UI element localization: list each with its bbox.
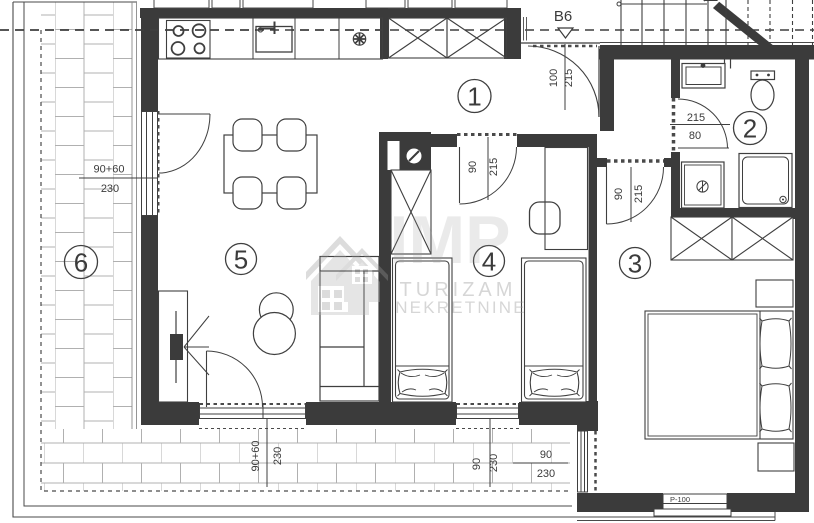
svg-text:5: 5: [234, 245, 248, 275]
svg-text:6: 6: [74, 248, 88, 278]
svg-text:90: 90: [613, 188, 625, 200]
svg-text:215: 215: [563, 69, 575, 87]
svg-text:230: 230: [488, 454, 500, 472]
svg-text:NEKRETNINE: NEKRETNINE: [395, 298, 527, 317]
svg-text:90: 90: [471, 458, 483, 470]
svg-text:100: 100: [548, 69, 560, 87]
svg-text:230: 230: [272, 447, 284, 465]
svg-text:90: 90: [540, 449, 552, 461]
svg-text:B6: B6: [554, 8, 572, 25]
svg-text:2: 2: [743, 114, 757, 144]
svg-text:3: 3: [628, 249, 642, 279]
svg-text:90+60: 90+60: [94, 164, 125, 176]
svg-text:230: 230: [101, 183, 119, 195]
svg-text:IMP: IMP: [390, 202, 511, 278]
svg-text:215: 215: [687, 112, 705, 124]
svg-text:230: 230: [537, 468, 555, 480]
svg-text:P-100: P-100: [670, 495, 690, 504]
svg-text:1: 1: [467, 82, 481, 112]
svg-text:90: 90: [467, 161, 479, 173]
svg-text:215: 215: [488, 158, 500, 176]
svg-text:90+60: 90+60: [250, 441, 262, 472]
svg-text:80: 80: [689, 130, 701, 142]
svg-text:215: 215: [633, 185, 645, 203]
